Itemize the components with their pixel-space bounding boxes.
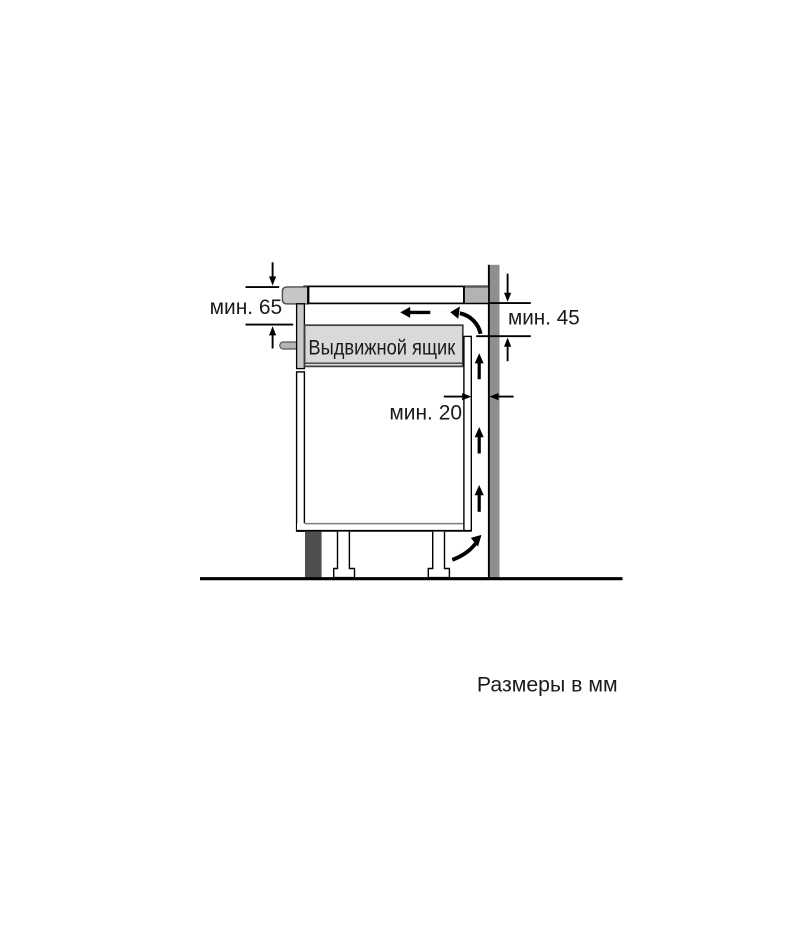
svg-text:мин. 45: мин. 45 [508, 306, 580, 330]
svg-text:мин. 65: мин. 65 [210, 295, 283, 319]
svg-text:мин. 20: мин. 20 [389, 401, 462, 425]
svg-text:Выдвижной ящик: Выдвижной ящик [308, 337, 456, 360]
svg-text:Размеры в мм: Размеры в мм [477, 673, 618, 697]
